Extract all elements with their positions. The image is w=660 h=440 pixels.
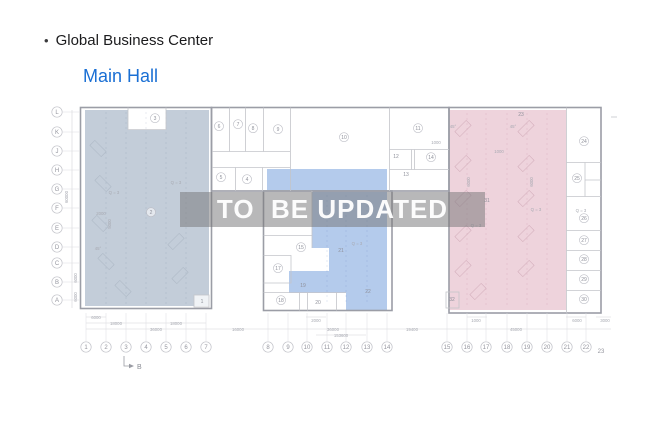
grid-col-label-16: 16 bbox=[464, 345, 471, 351]
room-number-12: 12 bbox=[393, 154, 399, 160]
grid-row-label-E: E bbox=[55, 226, 59, 232]
dimension-text: 36000 bbox=[327, 327, 340, 332]
plan-annotation: Q = 3 bbox=[576, 208, 587, 213]
bullet-icon: • bbox=[44, 34, 49, 47]
room-number-25: 25 bbox=[574, 176, 580, 182]
grid-col-label-22: 22 bbox=[583, 345, 590, 351]
room-number-20: 20 bbox=[315, 300, 321, 306]
grid-col-label-15: 15 bbox=[444, 345, 451, 351]
plan-annotation: 45° bbox=[95, 246, 102, 251]
grid-row-label-F: F bbox=[55, 206, 59, 212]
grid-row-label-C: C bbox=[55, 261, 60, 267]
room-number-28: 28 bbox=[581, 257, 587, 263]
room-number-11: 11 bbox=[415, 126, 420, 132]
grid-row-label-G: G bbox=[55, 187, 60, 193]
grid-row-label-D: D bbox=[55, 245, 60, 251]
grid-row-label-A: A bbox=[55, 298, 59, 304]
plan-annotation: Q = 3 bbox=[171, 180, 182, 185]
room-number-4: 4 bbox=[246, 177, 249, 183]
plan-annotation: Q = 3 bbox=[109, 190, 120, 195]
grid-col-label-14: 14 bbox=[384, 345, 391, 351]
grid-col-bubbles: 1234567891011121314151617181920212223 bbox=[81, 342, 605, 355]
room-number-1: 1 bbox=[201, 299, 204, 305]
grid-col-label-10: 10 bbox=[304, 345, 311, 351]
room-number-32: 32 bbox=[449, 297, 455, 303]
room-number-7: 7 bbox=[237, 122, 240, 128]
room-number-9: 9 bbox=[277, 127, 280, 133]
plan-annotation: Q = 3 bbox=[352, 241, 363, 246]
dimension-text: 6000 bbox=[73, 273, 78, 283]
plan-annotation: 6000 bbox=[529, 177, 534, 187]
room-number-10: 10 bbox=[341, 135, 347, 141]
dimension-text: 153600 bbox=[334, 333, 349, 338]
room-number-6: 6 bbox=[218, 124, 221, 130]
grid-col-label-12: 12 bbox=[343, 345, 350, 351]
plan-annotation: 45° bbox=[510, 124, 517, 129]
room-number-14: 14 bbox=[428, 155, 434, 161]
dimension-text: 19400 bbox=[406, 327, 419, 332]
grid-row-label-H: H bbox=[55, 168, 59, 174]
watermark-text: TO BE UPDATED bbox=[217, 194, 448, 225]
dimension-text: 16000 bbox=[232, 327, 245, 332]
grid-col-label-21: 21 bbox=[564, 345, 571, 351]
grid-col-label-18: 18 bbox=[504, 345, 511, 351]
dimension-text: 3000 bbox=[600, 318, 610, 323]
dimension-text: 60000 bbox=[64, 190, 69, 203]
plan-annotation: 1000 bbox=[494, 149, 504, 154]
watermark-banner: TO BE UPDATED bbox=[180, 192, 485, 227]
dimension-text: 6000 bbox=[572, 318, 582, 323]
room-number-29: 29 bbox=[581, 277, 587, 283]
grid-col-label-20: 20 bbox=[544, 345, 551, 351]
room-number-15: 15 bbox=[298, 245, 304, 251]
plan-annotation: 6000 bbox=[466, 177, 471, 187]
room-number-21: 21 bbox=[338, 248, 344, 254]
dimension-text: 45000 bbox=[510, 327, 523, 332]
grid-col-label-17: 17 bbox=[483, 345, 490, 351]
room-number-2: 2 bbox=[150, 210, 153, 216]
dimension-text: 1000 bbox=[471, 318, 481, 323]
grid-row-bubbles: LKJHGFEDCBA bbox=[52, 107, 62, 305]
grid-row-label-B: B bbox=[55, 280, 59, 286]
dimension-text: 6000 bbox=[91, 315, 101, 320]
dimension-text: 18000 bbox=[110, 321, 123, 326]
room-number-23: 23 bbox=[518, 112, 524, 118]
room-number-18: 18 bbox=[278, 298, 284, 304]
room-number-5: 5 bbox=[220, 175, 223, 181]
plan-annotation: 5000 bbox=[107, 219, 112, 229]
grid-row-label-J: J bbox=[56, 149, 59, 155]
section-marker: B bbox=[124, 356, 142, 371]
room-number-17: 17 bbox=[275, 266, 281, 272]
room-number-24: 24 bbox=[581, 139, 587, 145]
grid-col-label-13: 13 bbox=[364, 345, 371, 351]
room-number-26: 26 bbox=[581, 216, 587, 222]
hall-title: Main Hall bbox=[83, 66, 213, 87]
page-header: • Global Business Center Main Hall bbox=[44, 32, 213, 87]
plan-annotation: 1000 bbox=[431, 140, 441, 145]
dimension-text: 6000 bbox=[73, 292, 78, 302]
room-number-19: 19 bbox=[300, 283, 306, 289]
plan-annotation: 2000 bbox=[96, 211, 106, 216]
plan-annotation: 45° bbox=[450, 124, 457, 129]
room-number-27: 27 bbox=[581, 238, 587, 244]
dimension-text: 2000 bbox=[311, 318, 321, 323]
section-marker-label: B bbox=[137, 364, 142, 371]
dimension-text: 36000 bbox=[150, 327, 163, 332]
page-title: Global Business Center bbox=[56, 32, 214, 49]
room-number-13: 13 bbox=[403, 172, 409, 178]
dimension-text: 18000 bbox=[170, 321, 183, 326]
plan-annotation: Q = 3 bbox=[531, 207, 542, 212]
room-number-3: 3 bbox=[154, 116, 157, 122]
room-number-31: 31 bbox=[484, 198, 490, 204]
room-number-30: 30 bbox=[581, 297, 587, 303]
grid-col-label-11: 11 bbox=[324, 345, 331, 351]
room-number-22: 22 bbox=[365, 289, 371, 295]
grid-col-label-23: 23 bbox=[598, 349, 605, 355]
grid-row-label-K: K bbox=[55, 130, 59, 136]
room-number-8: 8 bbox=[252, 126, 255, 132]
grid-col-label-19: 19 bbox=[524, 345, 531, 351]
